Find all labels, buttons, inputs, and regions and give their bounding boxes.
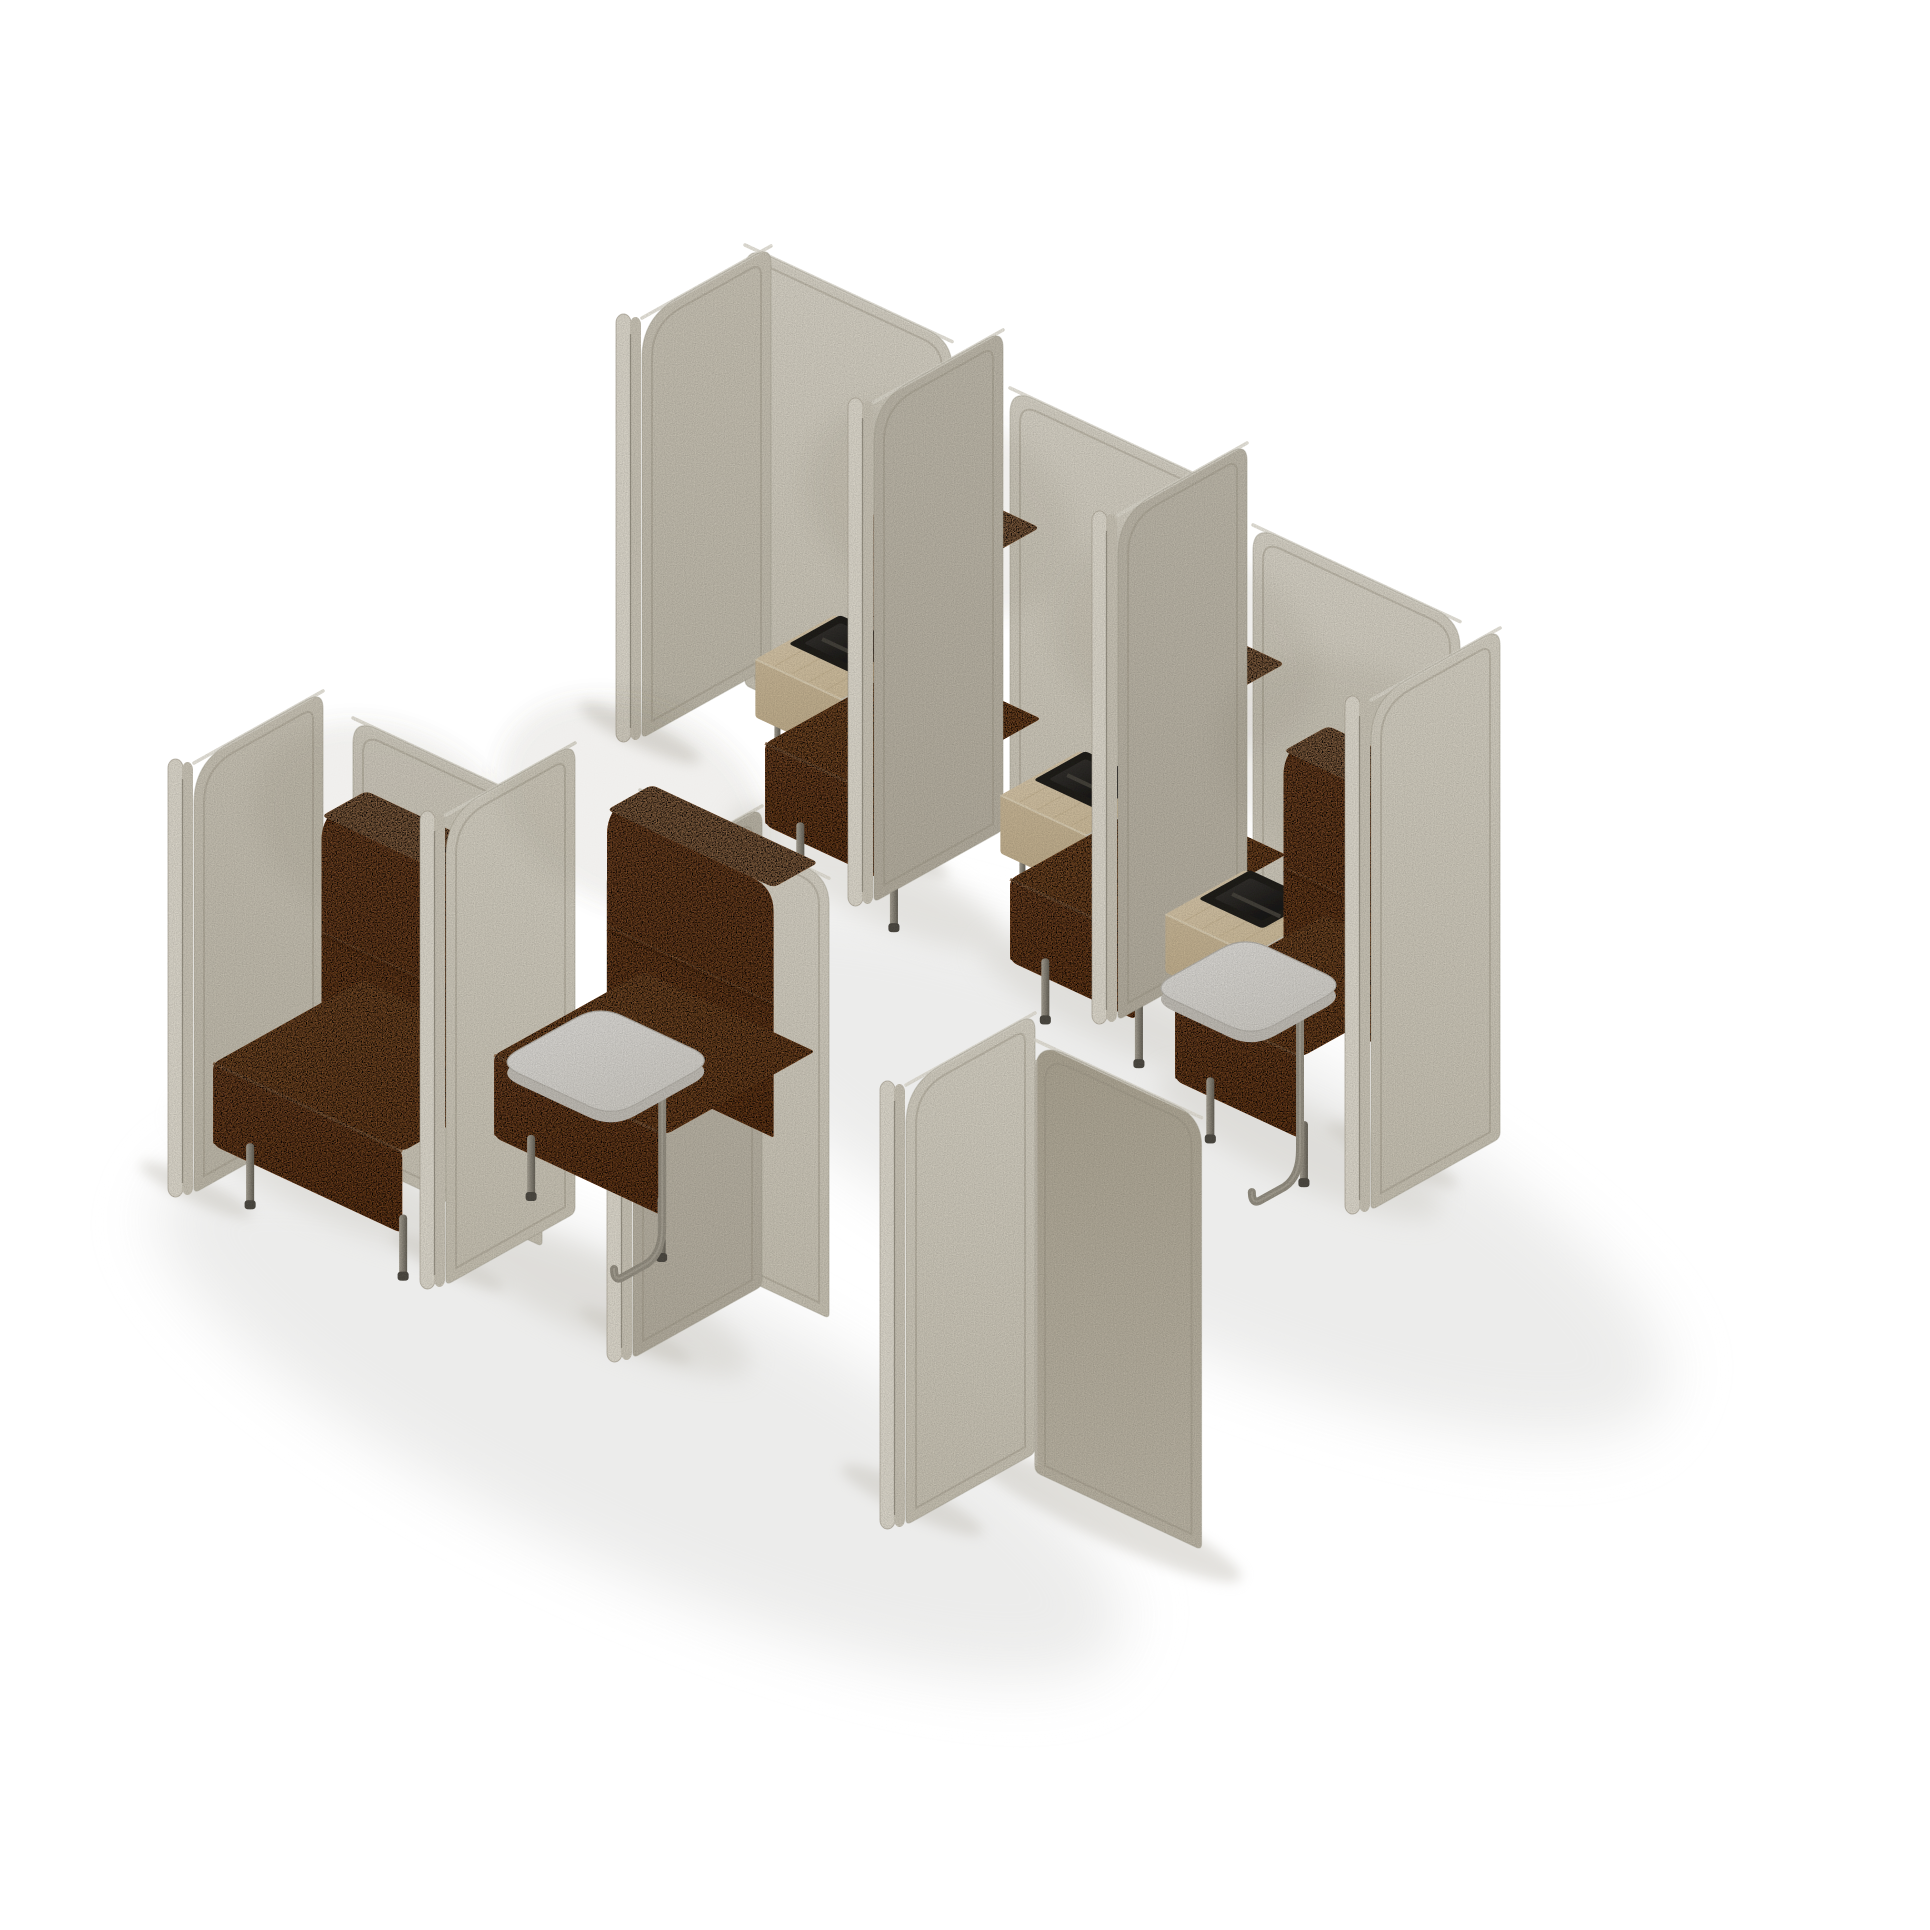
endcap-front-screen: [1035, 1040, 1202, 1548]
leg-foot: [526, 1192, 537, 1201]
divider-front-edge-outer: [616, 314, 631, 742]
divider-panel: [848, 330, 1003, 906]
divider-front-edge-outer: [420, 811, 435, 1289]
leg-foot: [1205, 1134, 1216, 1143]
divider-panel: [1345, 628, 1500, 1214]
leg-foot: [1133, 1059, 1144, 1068]
divider-front-edge-outer: [1345, 696, 1360, 1214]
metal-leg: [527, 1135, 535, 1201]
divider-front-edge-outer: [880, 1081, 895, 1529]
leg-foot: [1298, 1178, 1309, 1187]
divider-front-edge-inner: [1106, 514, 1117, 1022]
divider-panel: [616, 246, 771, 742]
divider-front-edge-inner: [894, 1084, 905, 1527]
leg-foot: [398, 1272, 409, 1281]
divider-side-face: [1371, 634, 1500, 1208]
divider-front-edge-inner: [630, 317, 641, 740]
metal-leg: [1135, 1002, 1143, 1068]
divider-panel: [880, 1013, 1035, 1529]
isometric-scene-svg: [0, 0, 1930, 1930]
metal-leg: [1206, 1077, 1214, 1143]
metal-leg: [399, 1215, 407, 1281]
divider-side-face: [874, 336, 1003, 900]
leg-foot: [1040, 1015, 1051, 1024]
divider-front-edge-outer: [168, 759, 183, 1197]
leg-foot: [245, 1200, 256, 1209]
divider-front-edge-inner: [182, 762, 193, 1195]
metal-leg: [1041, 958, 1049, 1024]
product-render-stage: [0, 0, 1930, 1930]
divider-front-edge-inner: [434, 814, 445, 1287]
divider-front-edge-inner: [862, 401, 873, 904]
divider-front-edge-inner: [1359, 699, 1370, 1212]
divider-side-face: [906, 1019, 1035, 1523]
divider-front-edge-outer: [1092, 511, 1107, 1024]
divider-front-edge-outer: [848, 398, 863, 906]
metal-leg: [246, 1143, 254, 1209]
leg-foot: [888, 923, 899, 932]
